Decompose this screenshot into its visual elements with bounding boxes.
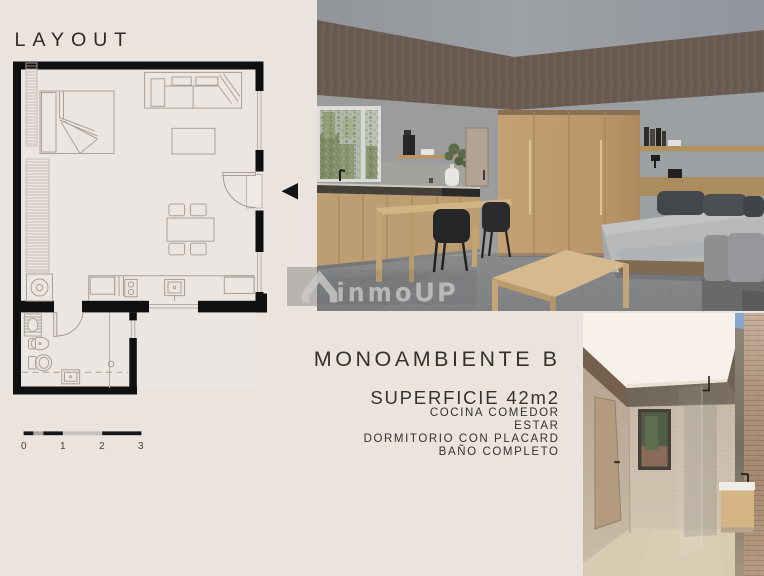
svg-text:1: 1 <box>60 441 66 452</box>
svg-text:2: 2 <box>99 441 105 452</box>
svg-text:3: 3 <box>138 441 144 452</box>
svg-text:0: 0 <box>21 441 27 452</box>
svg-text:inmoUP: inmoUP <box>337 277 459 307</box>
